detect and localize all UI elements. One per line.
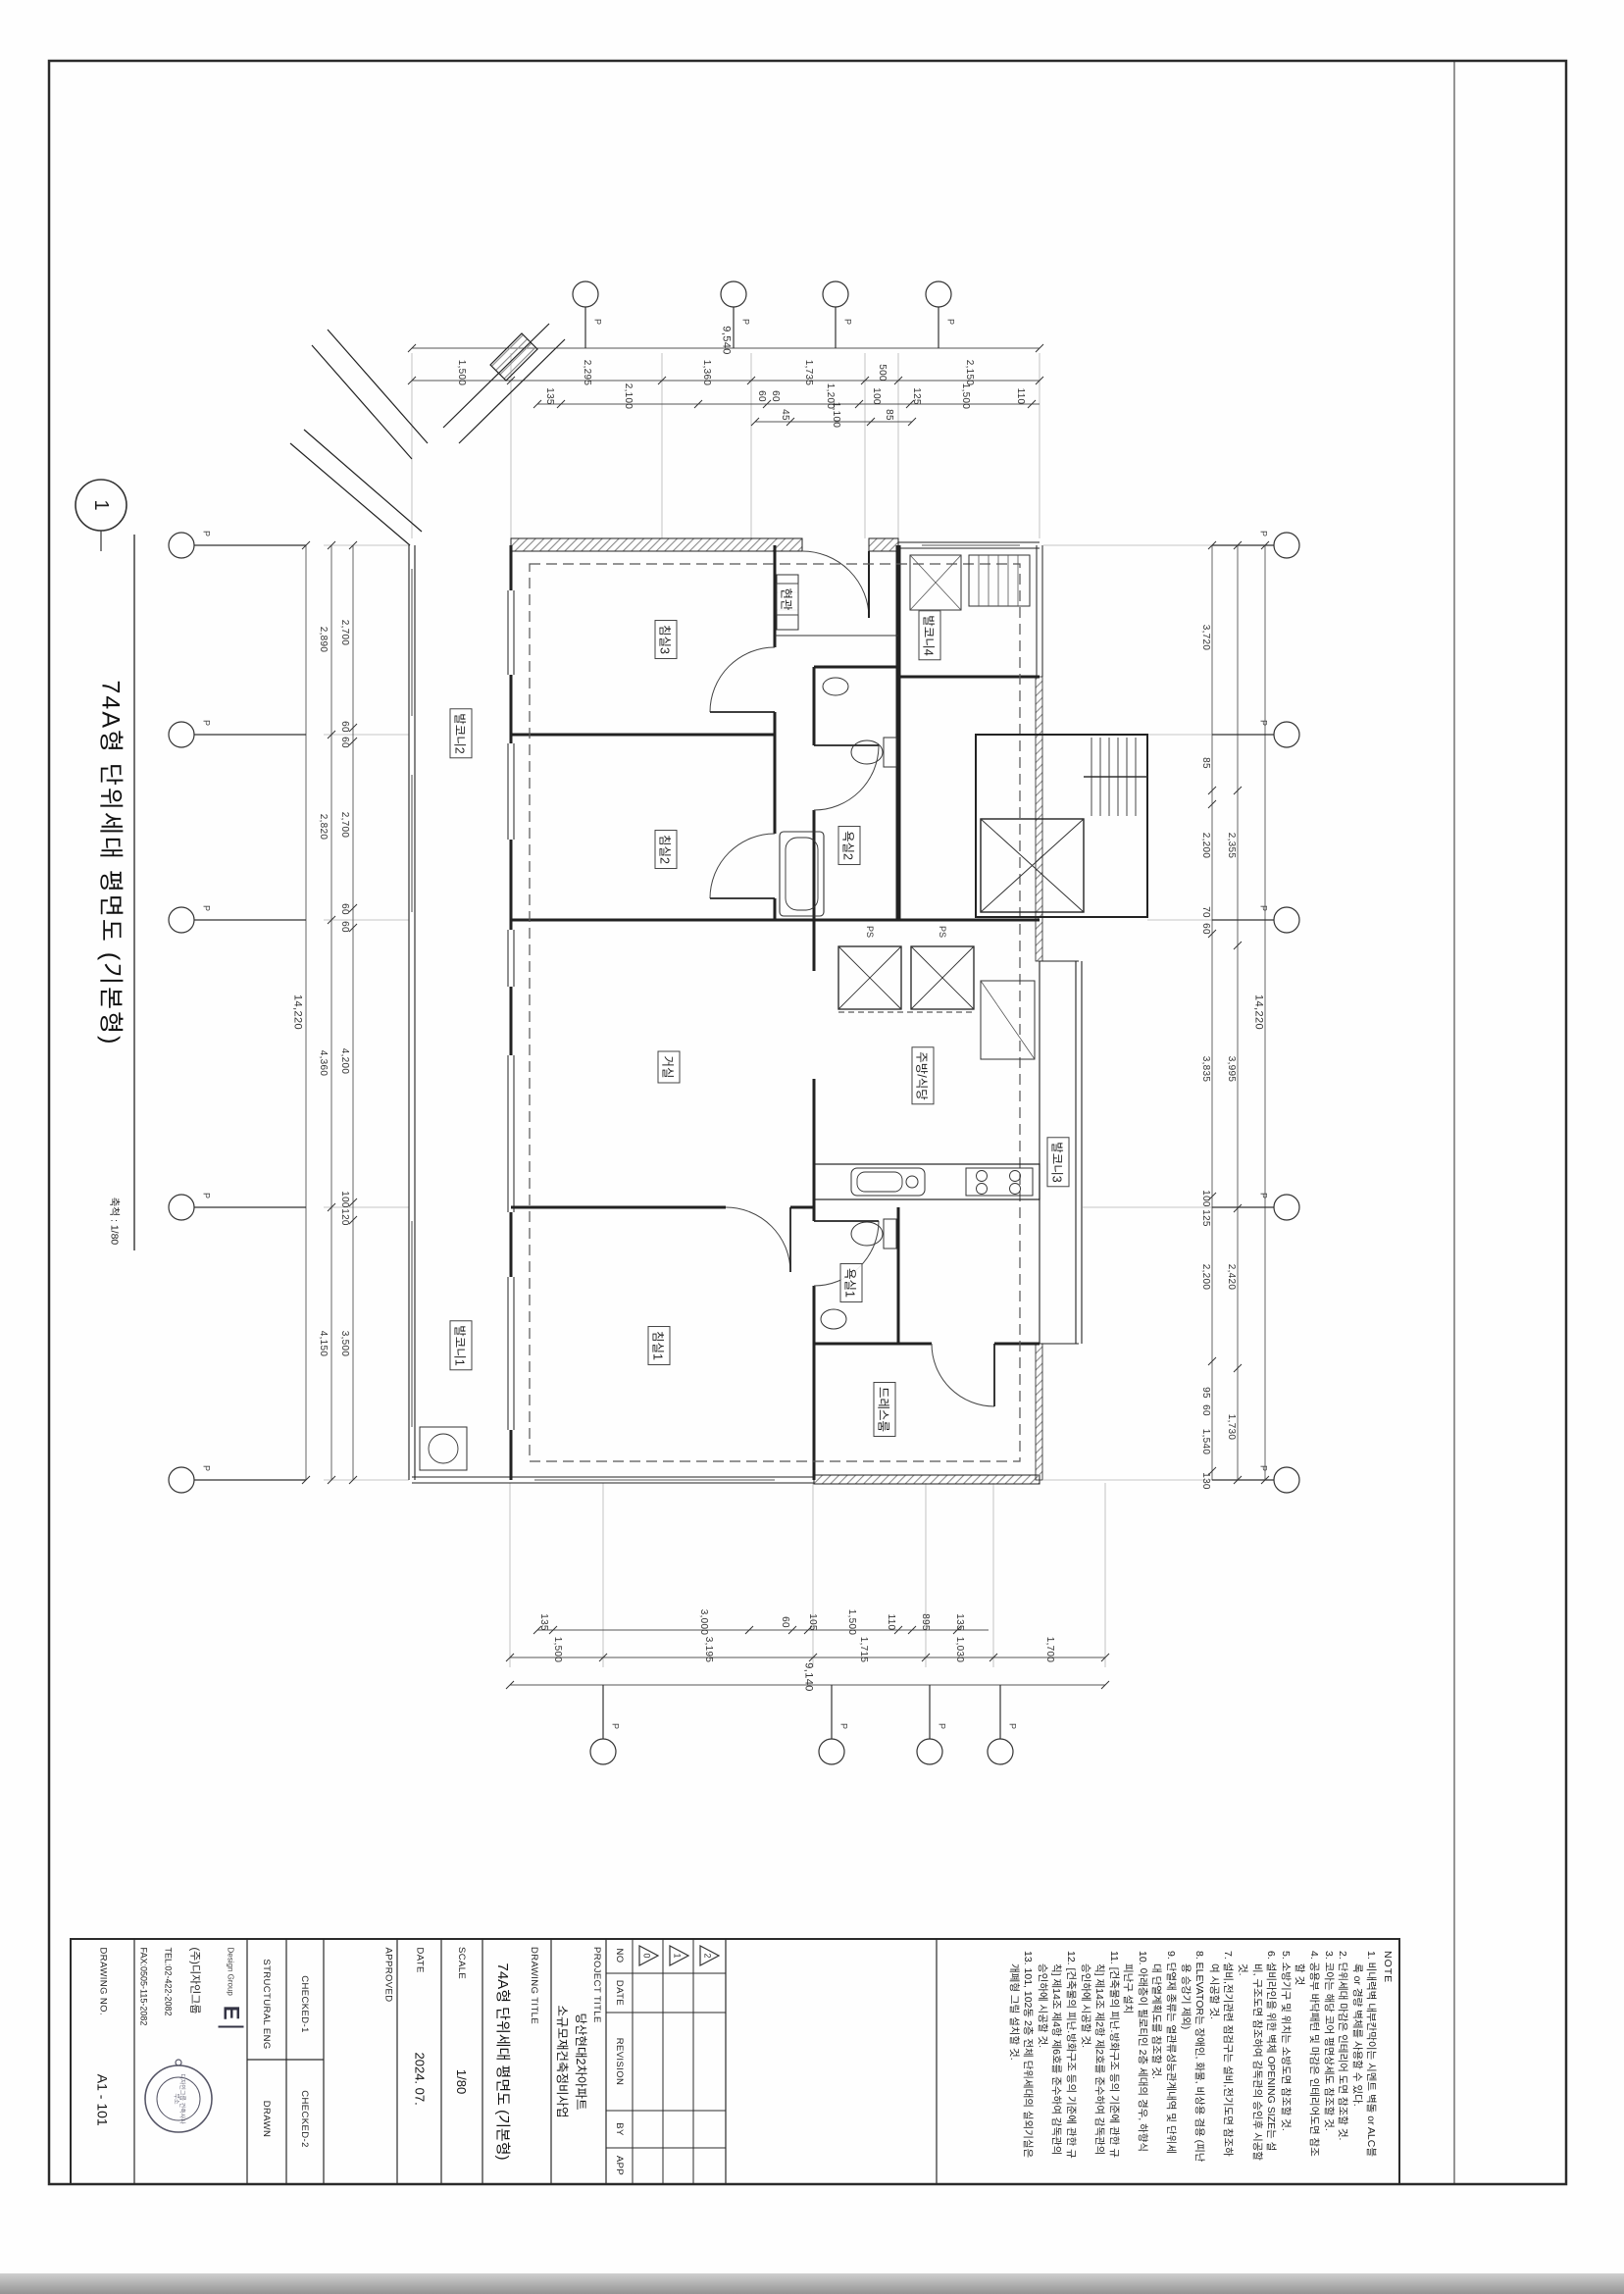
dim-label: 4,200 [339, 1048, 349, 1075]
figure-title: 74A형 단위세대 평면도 (기본형) [98, 681, 123, 1046]
dim-label: 2,700 [339, 812, 349, 839]
dim-label: 60 [770, 390, 780, 402]
dim-label: 60 [339, 721, 349, 733]
note-item: 10. 아래층이 필로티인 2층 세대의 경우, 하향식 피난구 설치 [1121, 1951, 1149, 2163]
checked2-label: CHECKED-2 [300, 2062, 311, 2176]
titleblock-date: DATE 2024. 07. [397, 1939, 441, 2184]
titleblock-drawing-no: DRAWING NO. A1 - 101 [71, 1939, 134, 2184]
dim-label: 1,500 [552, 1637, 562, 1663]
revision-app-label: APP [614, 2156, 624, 2175]
grid-bubble-label: P [843, 319, 852, 325]
date-value: 2024. 07. [412, 2052, 427, 2105]
dim-label: 1,030 [954, 1637, 964, 1663]
checked1-label: CHECKED-1 [300, 1947, 311, 2062]
dim-label: 60 [339, 921, 349, 933]
dim-label: 135 [544, 387, 554, 405]
dim-label: 3,500 [339, 1331, 349, 1357]
grid-bubble-label: P [1259, 720, 1268, 726]
dim-label: 60 [339, 903, 349, 915]
dim-label: 85 [1200, 757, 1210, 769]
dim-label: 125 [911, 387, 921, 405]
scan-edge-bottom [0, 2273, 1624, 2294]
project-title-line2: 소규모재건축정비사업 [554, 1947, 573, 2176]
dim-label: 2,420 [1226, 1264, 1236, 1291]
dim-label: 500 [877, 364, 887, 382]
dim-label: 3,720 [1200, 625, 1210, 651]
note-item: 12. [건축물의 피난.방화구조 등의 기준에 관한 규칙] 제14조 제4항… [1035, 1951, 1078, 2163]
room-label-balcony3: 발코니3 [1047, 1137, 1070, 1187]
revision-no-label: NO [614, 1948, 624, 1963]
room-label-ps1: PS [865, 926, 875, 938]
dim-label: 95 [1200, 1387, 1210, 1399]
note-item: 11. [건축물의 피난.방화구조 등의 기준에 관한 규칙] 제14조 제2항… [1078, 1951, 1121, 2163]
grid-bubble-label: P [202, 1465, 211, 1471]
date-label: DATE [414, 1947, 425, 1972]
note-item: 4. 공용부 바닥패턴 및 마감은 인테리어도면 참조할 것 [1293, 1951, 1321, 2163]
grid-bubble-label: P [202, 720, 211, 726]
room-label-bedroom3: 침실3 [655, 620, 678, 659]
note-item: 8. ELEVATOR는 장애인, 화물, 비상용 겸용 (피난용 승강기 제외… [1178, 1951, 1206, 2163]
room-label-entrance: 현관 [777, 583, 799, 615]
revision-by-label: BY [614, 2122, 624, 2135]
scanned-drawing-sheet: { "figure": { "number": "1", "title": "7… [0, 0, 1624, 2294]
grid-bubble-label: P [741, 319, 750, 325]
dim-label: 130 [1200, 1472, 1210, 1490]
dim-label: 2,200 [1200, 833, 1210, 859]
dim-label: 125 [1200, 1209, 1210, 1227]
titleblock-project-title: PROJECT TITLE 당산현대2차아파트 소규모재건축정비사업 [551, 1939, 606, 2184]
dim-label: 1,500 [846, 1609, 856, 1636]
dim-label: 135 [538, 1613, 548, 1631]
dim-label: 2,200 [1200, 1264, 1210, 1291]
grid-bubble-label: P [946, 319, 955, 325]
dim-label: 1,700 [1044, 1637, 1054, 1663]
grid-bubble-label: P [1259, 905, 1268, 911]
drawing-title-value: 74A형 단위세대 평면도 (기본형) [494, 1947, 515, 2176]
dim-label: 1,540 [1200, 1429, 1210, 1455]
dim-label: 1,715 [858, 1637, 868, 1663]
dim-label: 1,500 [960, 383, 970, 410]
company-logo: E [218, 2005, 243, 2027]
notes-block: NOTE 1. 비내력벽 내부칸막이는 시멘트 벽돌 or ALC블록 or 경… [937, 1944, 1399, 2169]
grid-bubble-label: P [1008, 1723, 1017, 1729]
revision-mark-1: 1 [673, 1953, 682, 1958]
dim-label: 2,150 [964, 360, 974, 386]
dim-label: 105 [807, 1613, 817, 1631]
room-label-bath2: 욕실2 [838, 826, 861, 865]
approved-label: APPROVED [382, 1947, 393, 2176]
room-label-dressroom: 드레스룸 [874, 1382, 896, 1437]
titleblock-structural-drawn: STRUCTURAL ENG DRAWN [247, 1939, 286, 2184]
dim-label: 135 [954, 1613, 964, 1631]
grid-bubble-label: P [611, 1723, 620, 1729]
dim-label: 60 [780, 1616, 789, 1628]
dim-label: 45 [780, 409, 789, 421]
revision-date-label: DATE [614, 1980, 624, 2006]
dim-label: 110 [1015, 388, 1025, 405]
dim-label: 60 [1200, 923, 1210, 935]
dim-label: 2,100 [623, 383, 633, 410]
project-title-label: PROJECT TITLE [591, 1947, 602, 2176]
grid-bubble-label: P [1259, 1193, 1268, 1198]
room-label-balcony2: 발코니2 [450, 708, 473, 758]
dim-label: 3,995 [1226, 1056, 1236, 1083]
titleblock-company: Design Group E (주)디자인그룹 TEL:02-422-2082 … [134, 1939, 247, 2184]
figure-number: 1 [91, 499, 111, 510]
dim-label: 3,000 [698, 1609, 708, 1636]
dim-label: 1,735 [803, 360, 813, 386]
dim-label: 1,730 [1226, 1414, 1236, 1441]
note-item: 9. 단열재 종류는 열관류성능관계내역 및 단위세대 단열계획도를 참조할 것… [1149, 1951, 1178, 2163]
scale-value: 1/80 [455, 2069, 470, 2094]
note-item: 3. 코아는 해당 코어 평면상세도 참조할 것. [1321, 1951, 1336, 2163]
grid-bubble-label: P [839, 1723, 848, 1729]
drawn-label: DRAWN [262, 2062, 273, 2176]
dim-label: 895 [920, 1613, 930, 1631]
titleblock-drawing-title: DRAWING TITLE 74A형 단위세대 평면도 (기본형) [482, 1939, 551, 2184]
note-item: 5. 소방기구 및 위치는 소방도면 참조할 것. [1278, 1951, 1293, 2163]
dim-label: 2,890 [318, 627, 328, 653]
dim-label: 85 [884, 409, 893, 421]
drawing-no-label: DRAWING NO. [97, 1947, 108, 2015]
dim-label: 100 [871, 387, 881, 405]
company-group-small: Design Group [227, 1947, 235, 1995]
dim-label: 2,820 [318, 814, 328, 841]
drawing-no-value: A1 - 101 [95, 2073, 111, 2125]
revision-revision-label: REVISION [614, 2038, 624, 2086]
titleblock-checked: CHECKED-1 CHECKED-2 [286, 1939, 324, 2184]
dim-label: 4,150 [318, 1331, 328, 1357]
room-label-ps2: PS [938, 926, 947, 938]
dim-label: 60 [1200, 1404, 1210, 1416]
dim-label: 2,355 [1226, 833, 1236, 859]
dim-label: 14,220 [292, 994, 303, 1030]
structural-eng-label: STRUCTURAL ENG [262, 1947, 273, 2062]
dim-label: 1,100 [831, 402, 840, 429]
titleblock-approved: APPROVED [324, 1939, 397, 2184]
dim-label: 4,360 [318, 1050, 328, 1077]
dim-label: 9,540 [721, 326, 732, 355]
dim-label: 1,500 [456, 360, 466, 386]
grid-bubble-label: P [202, 531, 211, 536]
room-label-kitchen: 주방/식당 [912, 1046, 935, 1104]
note-item: 2. 단위세대 마감은 인테리어 도면 참조할 것. [1336, 1951, 1350, 2163]
room-label-balcony4: 발코니4 [919, 610, 941, 660]
dim-label: 3,835 [1200, 1056, 1210, 1083]
company-fax: FAX:0505-115-2082 [138, 1947, 148, 2176]
dim-label: 100 [339, 1191, 349, 1208]
revision-mark-2: 2 [703, 1953, 712, 1958]
note-item: 13. 101, 102동 2층 전체 단위세대의 실외기실은 개폐형 그릴 설… [1006, 1951, 1035, 2163]
dim-label: 100 [1200, 1190, 1210, 1207]
dim-label: 60 [339, 737, 349, 748]
dim-label: 2,700 [339, 620, 349, 646]
grid-bubble-label: P [1259, 1465, 1268, 1471]
room-label-living: 거실 [658, 1050, 681, 1083]
company-name: (주)디자인그룹 [187, 1947, 203, 2176]
grid-bubble-label: P [938, 1723, 946, 1729]
dim-label: 110 [886, 1614, 895, 1631]
note-item: 6. 설비라인을 위한 벽체 OPENING SIZE는 설비, 구조도면 참조… [1235, 1951, 1278, 2163]
grid-bubble-label: P [1259, 531, 1268, 536]
note-item: 7. 설비,전기관련 점검구는 설비,전기도면 참조하여 시공할 것. [1206, 1951, 1235, 2163]
dim-label: 120 [339, 1208, 349, 1226]
project-title-line1: 당산현대2차아파트 [573, 1947, 591, 2176]
grid-bubble-label: P [593, 319, 602, 325]
dim-label: 9,140 [803, 1662, 814, 1692]
dim-label: 3,195 [703, 1637, 713, 1663]
dim-label: 1,360 [701, 360, 711, 386]
room-label-bedroom1: 침실1 [648, 1326, 671, 1365]
note-item: 1. 비내력벽 내부칸막이는 시멘트 벽돌 or ALC블록 or 경량 벽체를… [1349, 1951, 1378, 2163]
dim-label: 60 [756, 390, 766, 402]
grid-bubble-label: P [202, 1193, 211, 1198]
room-label-bedroom2: 침실2 [655, 830, 678, 869]
revision-mark-0: 0 [642, 1953, 651, 1958]
company-stamp-text: 디자인그룹 건축사사무소 [173, 2071, 184, 2126]
room-label-bath1: 욕실1 [840, 1263, 863, 1302]
grid-bubble-label: P [202, 905, 211, 911]
room-label-balcony1: 발코니1 [450, 1320, 473, 1370]
company-tel: TEL:02-422-2082 [163, 1947, 173, 2176]
drawing-title-label: DRAWING TITLE [530, 1947, 540, 2176]
dim-label: 14,220 [1253, 994, 1264, 1030]
dim-label: 70 [1200, 906, 1210, 918]
notes-header: NOTE [1380, 1951, 1395, 2163]
titleblock-scale: SCALE 1/80 [441, 1939, 482, 2184]
figure-scale-note: 축척 : 1/80 [109, 1198, 120, 1246]
scale-label: SCALE [457, 1947, 468, 1979]
dim-label: 2,295 [582, 360, 591, 386]
